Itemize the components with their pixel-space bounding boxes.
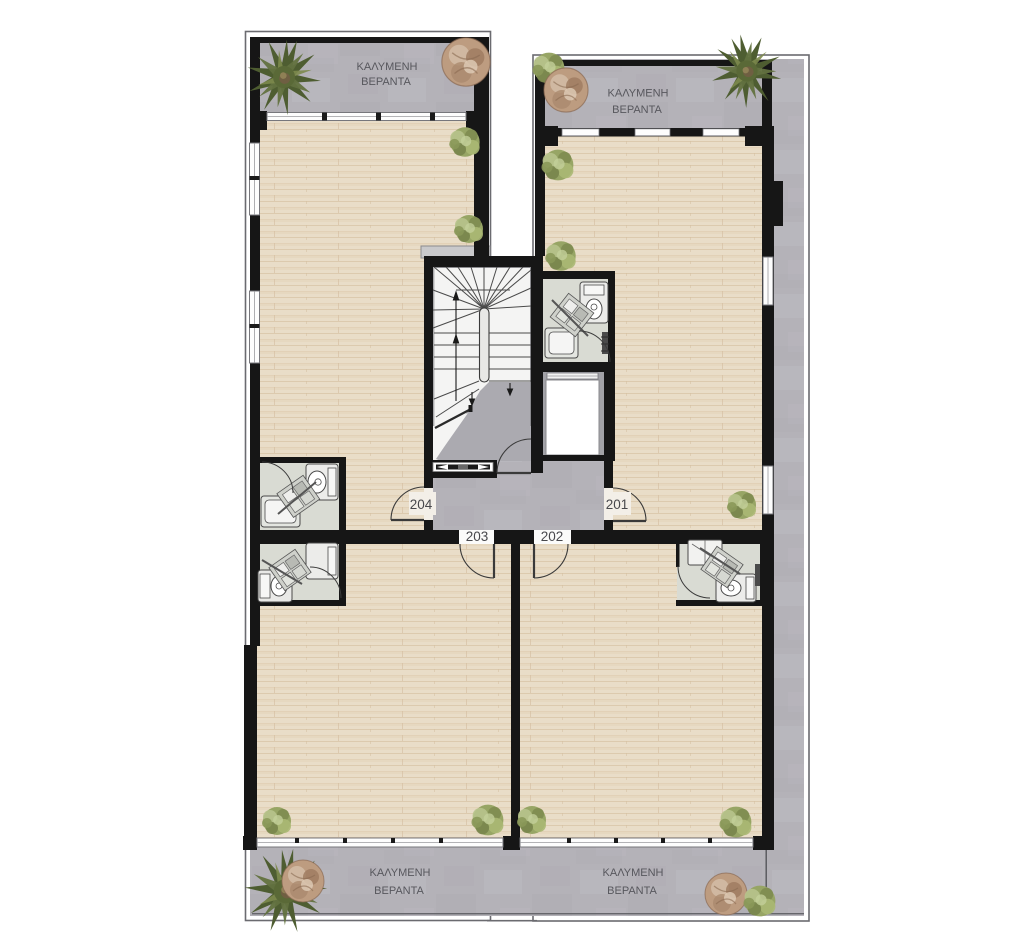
svg-text:ΒΕΡΑΝΤΑ: ΒΕΡΑΝΤΑ <box>612 104 662 116</box>
svg-text:ΒΕΡΑΝΤΑ: ΒΕΡΑΝΤΑ <box>607 885 657 897</box>
svg-text:ΒΕΡΑΝΤΑ: ΒΕΡΑΝΤΑ <box>361 76 411 88</box>
svg-text:ΚΑΛΥΜΕΝΗ: ΚΑΛΥΜΕΝΗ <box>370 867 431 879</box>
svg-text:201: 201 <box>606 497 629 512</box>
svg-text:ΒΕΡΑΝΤΑ: ΒΕΡΑΝΤΑ <box>374 885 424 897</box>
svg-text:202: 202 <box>541 529 564 544</box>
svg-text:ΚΑΛΥΜΕΝΗ: ΚΑΛΥΜΕΝΗ <box>608 88 669 100</box>
svg-text:203: 203 <box>466 529 489 544</box>
svg-text:ΚΑΛΥΜΕΝΗ: ΚΑΛΥΜΕΝΗ <box>603 867 664 879</box>
svg-text:ΚΑΛΥΜΕΝΗ: ΚΑΛΥΜΕΝΗ <box>357 61 418 73</box>
svg-text:204: 204 <box>410 497 433 512</box>
